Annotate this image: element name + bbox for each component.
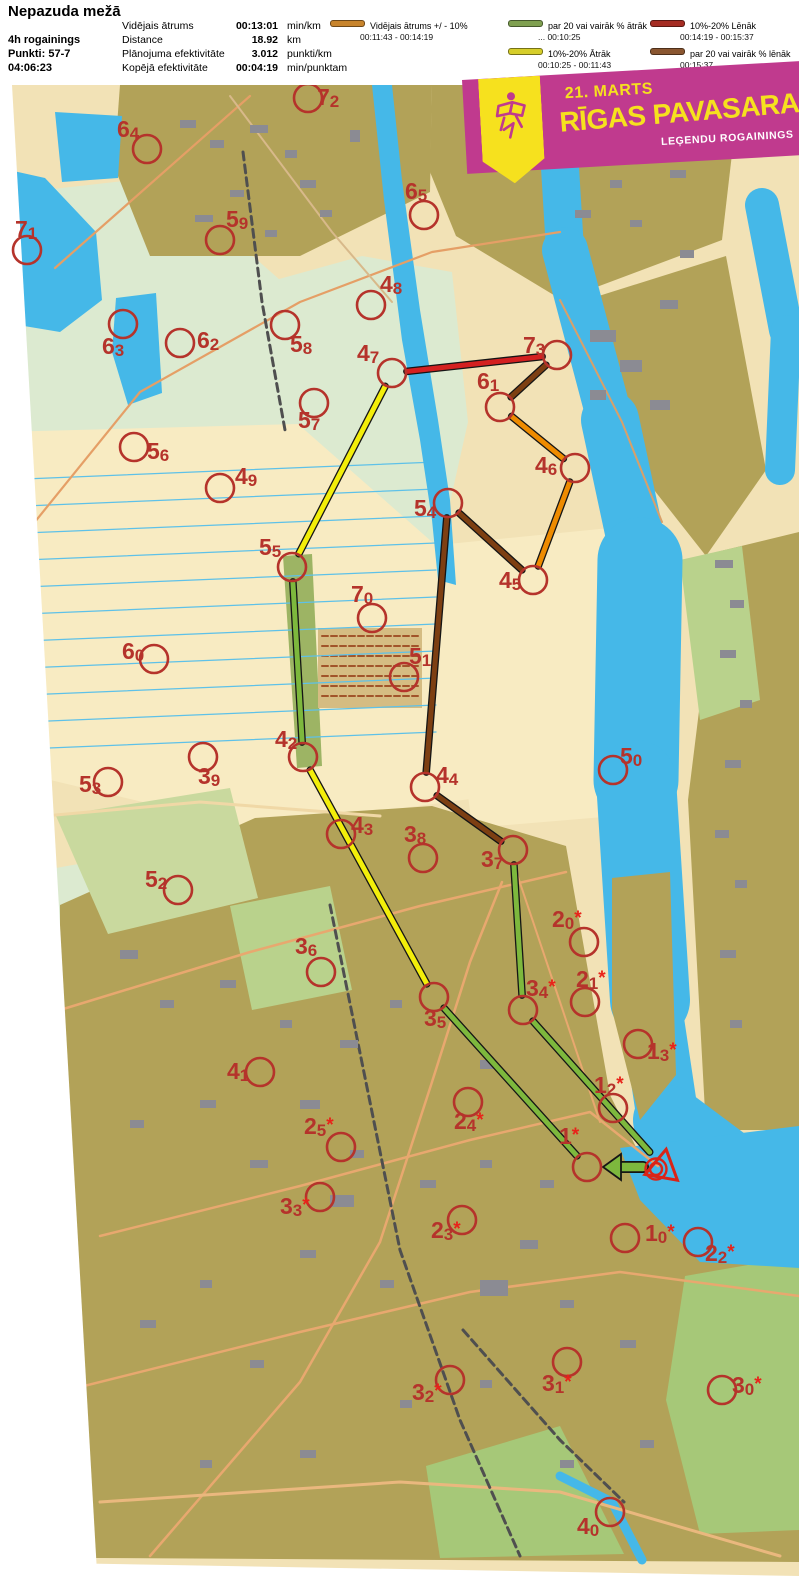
event-info: 4h rogainings Punkti: 57-7 04:06:23 [8, 33, 80, 75]
event-points: Punkti: 57-7 [8, 47, 80, 61]
legend-swatch [508, 20, 543, 27]
event-banner: 21. MARTS RĪGAS PAVASARA LEĢENDU ROGAINI… [462, 61, 799, 174]
event-format: 4h rogainings [8, 33, 80, 47]
legend-label: 10%-20% Lēnāk [690, 21, 756, 31]
stat-label: Plānojuma efektivitāte [122, 47, 232, 61]
legend-swatch [330, 20, 365, 27]
legend-column: Vidējais ātrums +/ - 10%00:11:43 - 00:14… [330, 20, 480, 48]
control-label-1s: 1* [559, 1123, 580, 1149]
runner-with-map-icon [490, 88, 533, 144]
legend-label: 10%-20% Ātrāk [548, 49, 611, 59]
legend-item: par 20 vai vairāk % ātrāk... 00:10:25 [508, 20, 648, 42]
stat-label: Vidējais ātrums [122, 19, 232, 33]
legend-swatch [650, 48, 685, 55]
legend-label: par 20 vai vairāk % lēnāk [690, 49, 791, 59]
legend-range: 00:14:19 - 00:15:37 [680, 32, 799, 42]
event-time: 04:06:23 [8, 61, 80, 75]
legend-label: par 20 vai vairāk % ātrāk [548, 21, 647, 31]
legend-item: 10%-20% Lēnāk00:14:19 - 00:15:37 [650, 20, 799, 42]
page-title: Nepazuda mežā [8, 3, 121, 20]
stat-value: 18.92 [232, 33, 278, 47]
pennant-logo [478, 76, 546, 185]
stat-value: 00:13:01 [232, 19, 278, 33]
legend-range: ... 00:10:25 [538, 32, 648, 42]
stat-label: Kopējā efektivitāte [122, 61, 232, 75]
legend-label: Vidējais ātrums +/ - 10% [370, 21, 468, 31]
stat-value: 00:04:19 [232, 61, 278, 75]
stat-value: 3.012 [232, 47, 278, 61]
legend-item: 10%-20% Ātrāk00:10:25 - 00:11:43 [508, 48, 648, 70]
stats-table: Vidējais ātrums00:13:01min/kmDistance18.… [122, 19, 347, 75]
analysis-page: 7264657159486362584773615756464954554570… [0, 0, 799, 1590]
legend-swatch [650, 20, 685, 27]
legend-item: Vidējais ātrums +/ - 10%00:11:43 - 00:14… [330, 20, 480, 42]
stat-label: Distance [122, 33, 232, 47]
banner-subtitle: LEĢENDU ROGAININGS [661, 129, 794, 148]
legend-range: 00:11:43 - 00:14:19 [360, 32, 480, 42]
legend-column: par 20 vai vairāk % ātrāk... 00:10:2510%… [508, 20, 648, 76]
legend-range: 00:10:25 - 00:11:43 [538, 60, 648, 70]
legend-swatch [508, 48, 543, 55]
map-svg: 7264657159486362584773615756464954554570… [0, 0, 799, 1590]
